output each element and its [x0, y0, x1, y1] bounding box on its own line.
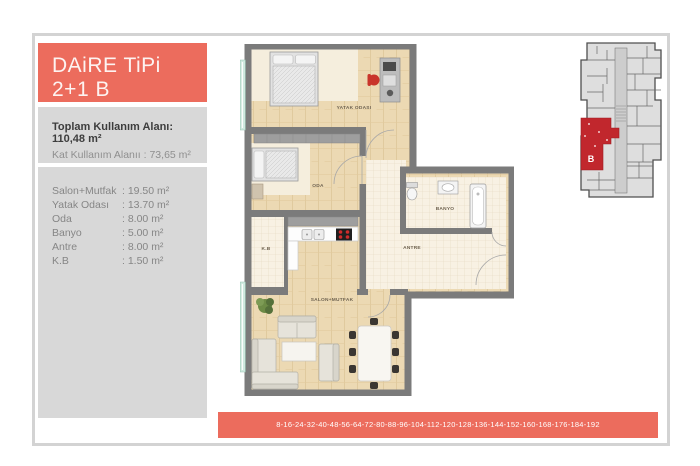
room-areas-list: Salon+Mutfak: 19.50 m² Yatak Odası: 13.7…: [38, 167, 207, 418]
toilet-icon: [407, 183, 418, 201]
list-item: Salon+Mutfak: 19.50 m²: [52, 184, 207, 198]
room-area: : 13.70 m²: [122, 199, 169, 211]
floor-usage-area: Kat Kullanım Alanıı : 73,65 m²: [52, 149, 207, 161]
room-label-oda: ODA: [312, 183, 324, 189]
unit-b-label: B: [588, 154, 595, 164]
unit-numbers-bar: 8-16-24-32-40-48-56-64-72-80-88-96-104-1…: [218, 412, 658, 438]
list-item: K.B: 1.50 m²: [52, 254, 207, 268]
room-area: : 5.00 m²: [122, 227, 163, 239]
room-area: : 19.50 m²: [122, 185, 169, 197]
unit-numbers-text: 8-16-24-32-40-48-56-64-72-80-88-96-104-1…: [276, 420, 600, 429]
room-label-salon-mutfak: SALON+MUTFAK: [311, 297, 354, 303]
room-label-antre: ANTRE: [403, 245, 421, 251]
page-title-line2: 2+1 B: [52, 78, 207, 102]
room-area: : 8.00 m²: [122, 241, 163, 253]
bathroom-sink-icon: [438, 181, 458, 194]
page-title-line1: DAiRE TiPi: [52, 54, 207, 78]
plan-title-block: DAiRE TiPi 2+1 B: [38, 43, 207, 102]
room-area: : 8.00 m²: [122, 213, 163, 225]
list-item: Banyo: 5.00 m²: [52, 226, 207, 240]
list-item: Oda: 8.00 m²: [52, 212, 207, 226]
bathtub-icon: [470, 184, 486, 228]
room-name: Salon+Mutfak: [52, 184, 122, 198]
list-item: Antre: 8.00 m²: [52, 240, 207, 254]
total-usage-area: Toplam Kullanım Alanı: 110,48 m²: [52, 121, 207, 145]
nightstand: [252, 184, 263, 199]
room-name: Banyo: [52, 226, 122, 240]
room-name: Oda: [52, 212, 122, 226]
kb-tile-floor: [248, 217, 284, 287]
room-label-yatak-odasi: YATAK ODASI: [337, 105, 372, 111]
total-area-block: Toplam Kullanım Alanı: 110,48 m² Kat Kul…: [38, 107, 207, 163]
building-corridor: [615, 48, 627, 193]
room-name: K.B: [52, 254, 122, 268]
single-bed: [252, 148, 298, 181]
room-name: Antre: [52, 240, 122, 254]
room-area: : 1.50 m²: [122, 255, 163, 267]
double-bed: [270, 52, 318, 106]
floor-plan: YATAK ODASI ODA BANYO ANTRE K.B SALON+MU…: [240, 44, 514, 396]
building-key-plan: B: [577, 40, 665, 200]
list-item: Yatak Odası: 13.70 m²: [52, 198, 207, 212]
dining-table: [358, 326, 391, 381]
coffee-table: [282, 342, 316, 361]
room-name: Yatak Odası: [52, 198, 122, 212]
room-label-kb: K.B: [261, 246, 270, 252]
room-label-banyo: BANYO: [436, 206, 455, 212]
stove-icon: [336, 229, 352, 241]
desk: [380, 58, 400, 102]
